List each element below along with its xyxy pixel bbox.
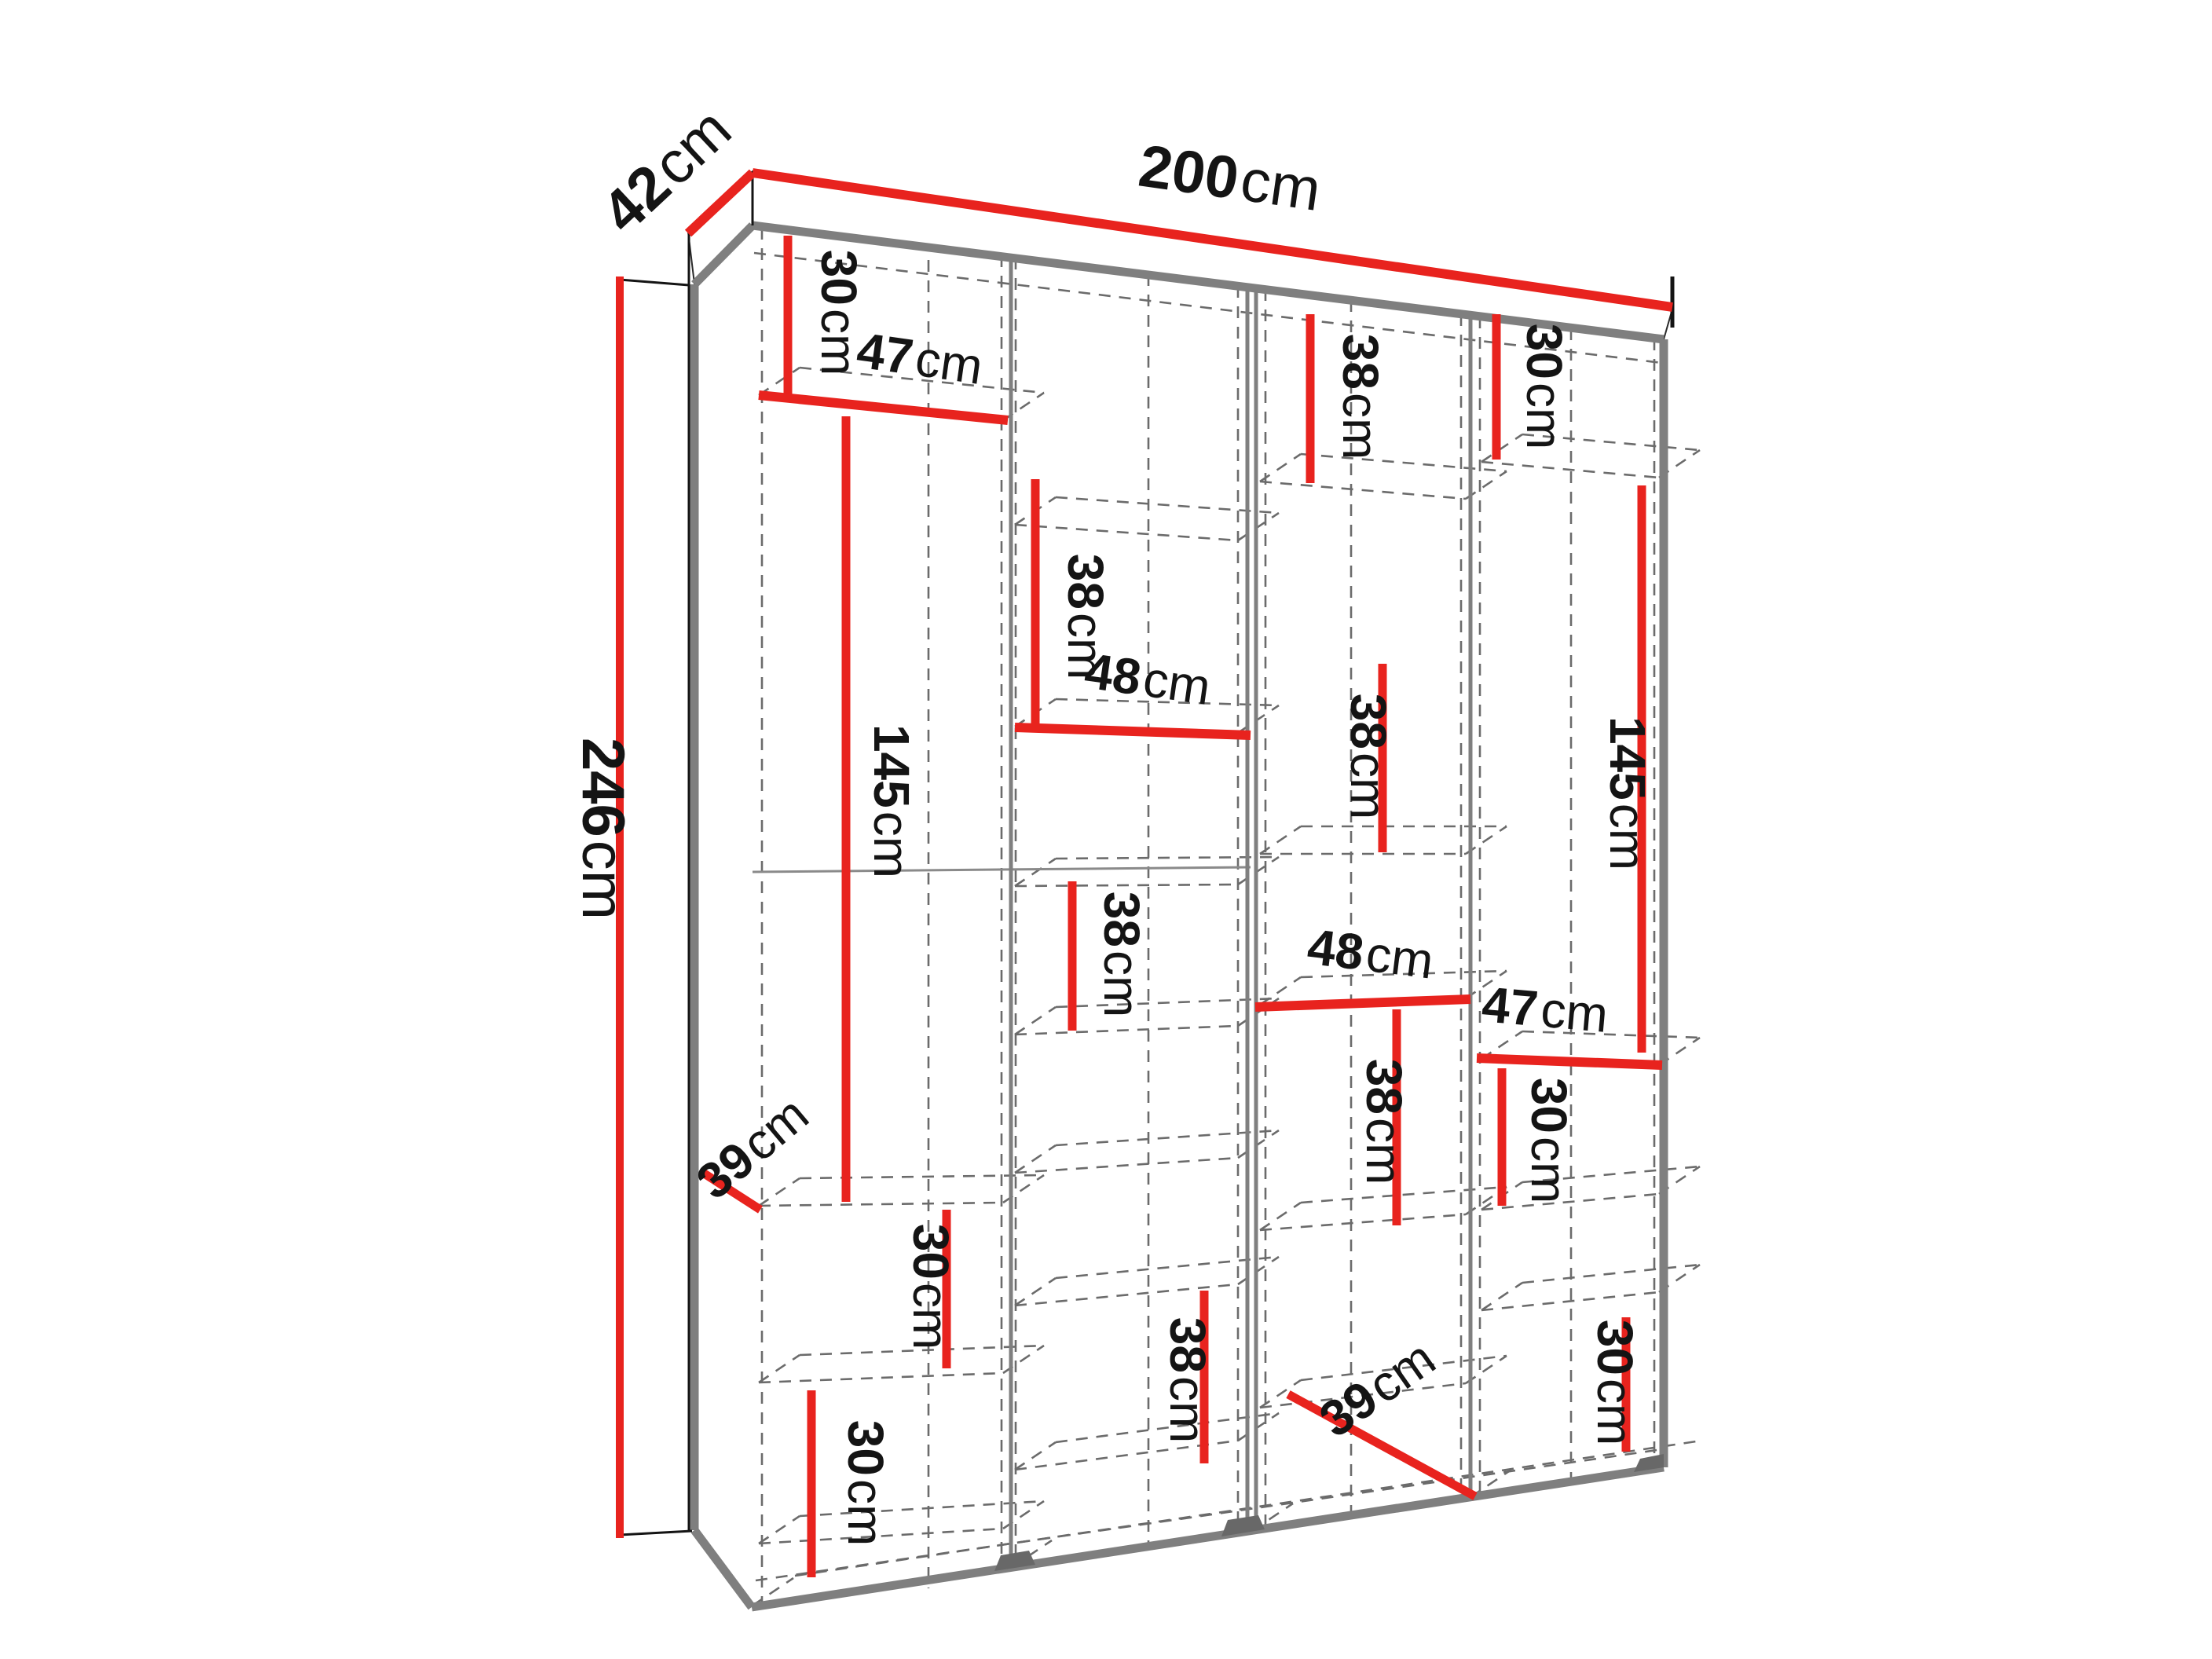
dim-unit-c1_30b: cm xyxy=(837,1479,894,1546)
shelf-side-edge xyxy=(1015,1007,1056,1035)
shelf-front-edge xyxy=(1260,482,1466,499)
dim-value-c4_145: 145 xyxy=(1599,716,1656,800)
shelf-side-edge xyxy=(1015,1278,1056,1306)
dim-label-c1_30a: 30cm xyxy=(903,1224,959,1350)
dim-label-c4_47: 47cm xyxy=(1480,976,1610,1043)
shelf-back-edge xyxy=(1301,454,1507,471)
shelf-front-edge xyxy=(1015,1158,1238,1173)
dim-label-d246: 246cm xyxy=(569,738,636,920)
diagram-canvas: 42cm200cm246cm30cm47cm145cm39cm30cm30cm3… xyxy=(0,0,2212,1659)
dim-value-c1_30b: 30 xyxy=(837,1420,894,1476)
dim-unit-c3_38mu: cm xyxy=(1340,753,1397,819)
dim-unit-c4_47: cm xyxy=(1539,981,1610,1043)
dim-value-c2_48: 48 xyxy=(1082,642,1145,705)
dim-unit-c4_30b: cm xyxy=(1587,1379,1643,1445)
dim-value-c3_38t: 38 xyxy=(1332,334,1389,390)
dim-value-c4_30a: 30 xyxy=(1521,1078,1577,1133)
dim-label-c3_39: 39cm xyxy=(1309,1329,1445,1448)
shelf-side-edge xyxy=(1015,859,1056,886)
dim-label-c2_38c: 38cm xyxy=(1159,1317,1216,1444)
dim-value-c1_145: 145 xyxy=(863,724,920,808)
dim-line-c4_47 xyxy=(1477,1058,1662,1065)
dim-label-c1_39: 39cm xyxy=(686,1086,819,1210)
dim-unit-d246: cm xyxy=(569,840,636,920)
wardrobe-dimension-diagram: 42cm200cm246cm30cm47cm145cm39cm30cm30cm3… xyxy=(0,0,2212,1659)
dim-value-c3_48: 48 xyxy=(1305,918,1367,981)
shelf-side-edge xyxy=(1238,705,1279,733)
dim-unit-d200: cm xyxy=(1236,147,1324,224)
dim-unit-c1_47: cm xyxy=(912,330,987,395)
dim-unit-c4_145: cm xyxy=(1599,804,1656,870)
shelf-side-edge xyxy=(1238,1130,1279,1158)
shelf-front-edge xyxy=(1015,525,1238,540)
shelf-side-edge xyxy=(1481,1283,1522,1310)
dim-value-c1_30t: 30 xyxy=(811,250,867,306)
shelf-back-edge xyxy=(800,1501,1044,1516)
dim-unit-c2_48: cm xyxy=(1140,650,1214,716)
dim-value-c4_30b: 30 xyxy=(1587,1320,1643,1375)
dim-value-c2_38a: 38 xyxy=(1057,554,1114,610)
shelf-back-edge xyxy=(1301,1187,1507,1203)
dim-line-c1_47 xyxy=(759,395,1008,420)
dim-label-d200: 200cm xyxy=(1135,133,1325,224)
dim-unit-c3_38t: cm xyxy=(1332,393,1389,460)
dim-value-c3_38mu: 38 xyxy=(1340,694,1397,749)
dim-label-c2_38b: 38cm xyxy=(1093,892,1150,1018)
shelf-side-edge xyxy=(1015,1145,1056,1173)
shelf-front-edge xyxy=(1015,884,1238,886)
dim-value-c4_47: 47 xyxy=(1480,976,1540,1037)
shelf-side-edge xyxy=(759,1178,800,1206)
shelf-side-edge xyxy=(1238,513,1279,540)
dim-value-c1_30a: 30 xyxy=(903,1224,959,1280)
dim-label-c2_48: 48cm xyxy=(1082,642,1214,716)
dim-label-c3_38ml: 38cm xyxy=(1356,1059,1412,1185)
shelf-side-edge xyxy=(759,368,800,395)
dim-label-c1_30b: 30cm xyxy=(837,1420,894,1547)
shelf-front-edge xyxy=(1015,1026,1238,1035)
dim-unit-c1_145: cm xyxy=(863,811,920,878)
dim-value-c2_38c: 38 xyxy=(1159,1317,1216,1373)
shelf-back-edge xyxy=(1056,497,1279,513)
dim-label-c3_38t: 38cm xyxy=(1332,334,1389,460)
outline-edge xyxy=(620,280,689,285)
dim-value-c3_38ml: 38 xyxy=(1356,1059,1412,1115)
dim-unit-c4_30t: cm xyxy=(1516,383,1573,449)
dim-line-c2_48 xyxy=(1015,727,1251,735)
shelf-front-edge xyxy=(1260,1214,1466,1230)
dim-value-c1_47: 47 xyxy=(854,321,917,385)
shelf-back-edge xyxy=(1056,1130,1279,1145)
dim-unit-c2_38b: cm xyxy=(1093,950,1150,1017)
dim-label-c4_145: 145cm xyxy=(1599,716,1656,870)
dim-label-c4_30a: 30cm xyxy=(1521,1078,1577,1204)
dim-value-c4_30t: 30 xyxy=(1516,324,1573,379)
dim-value-d200: 200 xyxy=(1135,133,1243,213)
shelf-back-edge xyxy=(1056,857,1279,859)
shelf-front-edge xyxy=(759,1373,1003,1382)
dim-label-c1_47: 47cm xyxy=(854,321,987,395)
dim-label-c4_30b: 30cm xyxy=(1587,1320,1643,1446)
dim-unit-c4_30a: cm xyxy=(1521,1137,1577,1203)
carcass-edge xyxy=(694,1530,752,1607)
shelf-side-edge xyxy=(759,1516,800,1544)
dim-value-d246: 246 xyxy=(569,738,636,837)
dim-label-c3_48: 48cm xyxy=(1305,918,1437,990)
shelf-side-edge xyxy=(759,1355,800,1382)
outline-edge xyxy=(620,1531,692,1535)
shelf-back-edge xyxy=(1056,1257,1279,1278)
shelf-back-edge xyxy=(1522,1265,1700,1283)
dim-label-c3_38mu: 38cm xyxy=(1340,694,1397,820)
shelf-side-edge xyxy=(1015,1442,1056,1470)
dim-unit-c3_38ml: cm xyxy=(1356,1118,1412,1185)
dim-label-c1_145: 145cm xyxy=(863,724,920,878)
dim-unit-c2_38c: cm xyxy=(1159,1376,1216,1443)
shelf-back-edge xyxy=(1056,998,1279,1007)
dim-line-c3_48 xyxy=(1255,999,1470,1007)
dim-unit-c1_30a: cm xyxy=(903,1283,959,1350)
shelf-side-edge xyxy=(1238,857,1279,884)
dim-unit-c3_48: cm xyxy=(1363,925,1436,990)
dim-label-c4_30t: 30cm xyxy=(1516,324,1573,450)
shelf-front-edge xyxy=(759,1203,1003,1206)
shelf-back-edge xyxy=(800,1175,1044,1178)
dim-value-c2_38b: 38 xyxy=(1093,892,1150,947)
